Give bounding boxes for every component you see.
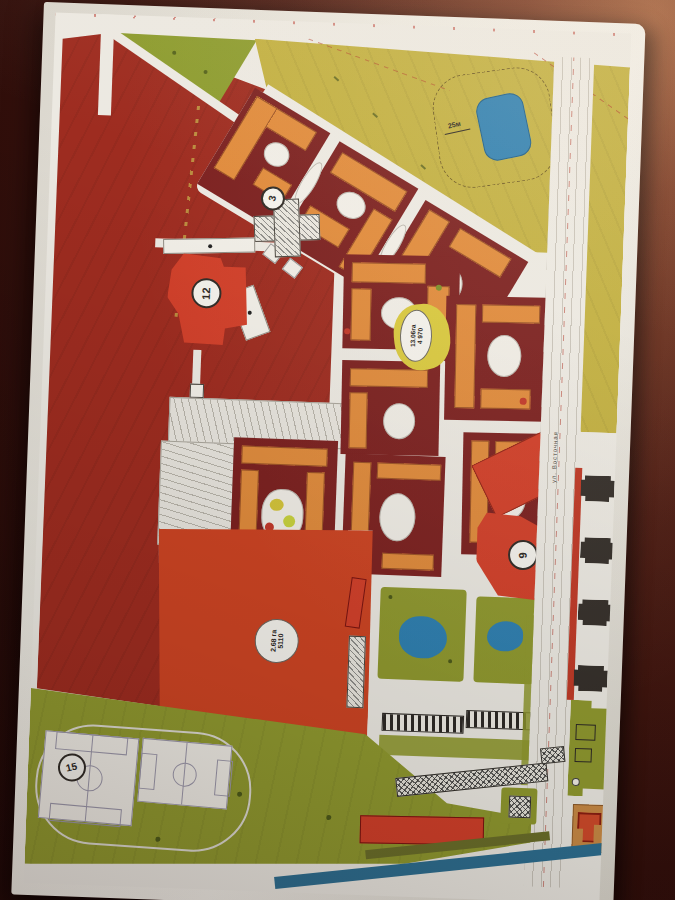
masterplan-map: 25м xyxy=(24,12,632,900)
apartment-building xyxy=(241,446,328,467)
black-building xyxy=(580,475,615,502)
court-outline xyxy=(575,724,596,741)
apartment-building xyxy=(377,463,442,481)
tree-symbol xyxy=(448,659,452,663)
field-area-line2: 5110 xyxy=(276,630,284,653)
hatched-building-step xyxy=(540,746,566,764)
utility-box xyxy=(190,384,205,399)
apartment-building xyxy=(350,288,371,340)
apartment-building xyxy=(349,392,368,448)
paper-sheet: 25м xyxy=(11,2,645,900)
school-building xyxy=(253,198,319,256)
photo-of-masterplan-map: { "palette": { "road_white": "#ece9e2", … xyxy=(0,0,675,900)
black-building xyxy=(578,599,613,626)
marker-stadium-number: 15 xyxy=(65,761,78,773)
courtyard-blob xyxy=(259,138,294,172)
apartment-building xyxy=(352,262,426,283)
courtyard-blob xyxy=(378,493,416,542)
apartment-building xyxy=(381,553,434,571)
area-density-line2: 4 970 xyxy=(416,325,424,348)
residential-block xyxy=(340,360,440,456)
tree-symbol xyxy=(572,778,580,786)
kindergarten-pond xyxy=(487,621,524,652)
street-name-text: ул. Восточная xyxy=(551,431,559,483)
marker-building-9-number: 9 xyxy=(517,552,528,559)
small-hatched-building xyxy=(508,796,531,819)
marker-school-number: 3 xyxy=(267,195,278,203)
marker-building-12-number: 12 xyxy=(201,287,212,300)
court-outline xyxy=(575,748,593,763)
kindergarten-pond xyxy=(398,615,448,659)
kindergarten-building xyxy=(346,636,366,709)
apartment-building xyxy=(350,368,428,387)
black-building xyxy=(580,537,615,564)
outlined-building xyxy=(577,812,602,843)
margin-ticks xyxy=(56,12,632,36)
green-block-east xyxy=(567,700,608,797)
courtyard-blob xyxy=(487,335,522,378)
residential-block xyxy=(444,296,546,422)
tree-symbol xyxy=(388,595,392,599)
courtyard-blob xyxy=(383,403,416,440)
sports-field-west xyxy=(38,730,139,826)
apartment-building xyxy=(454,304,476,408)
linear-structure xyxy=(163,237,255,253)
sports-field-east xyxy=(137,738,232,810)
black-building xyxy=(573,665,608,692)
apartment-building xyxy=(482,305,540,324)
kindergarten-green-yard xyxy=(377,587,466,682)
kindergarten-long-building xyxy=(382,713,465,734)
